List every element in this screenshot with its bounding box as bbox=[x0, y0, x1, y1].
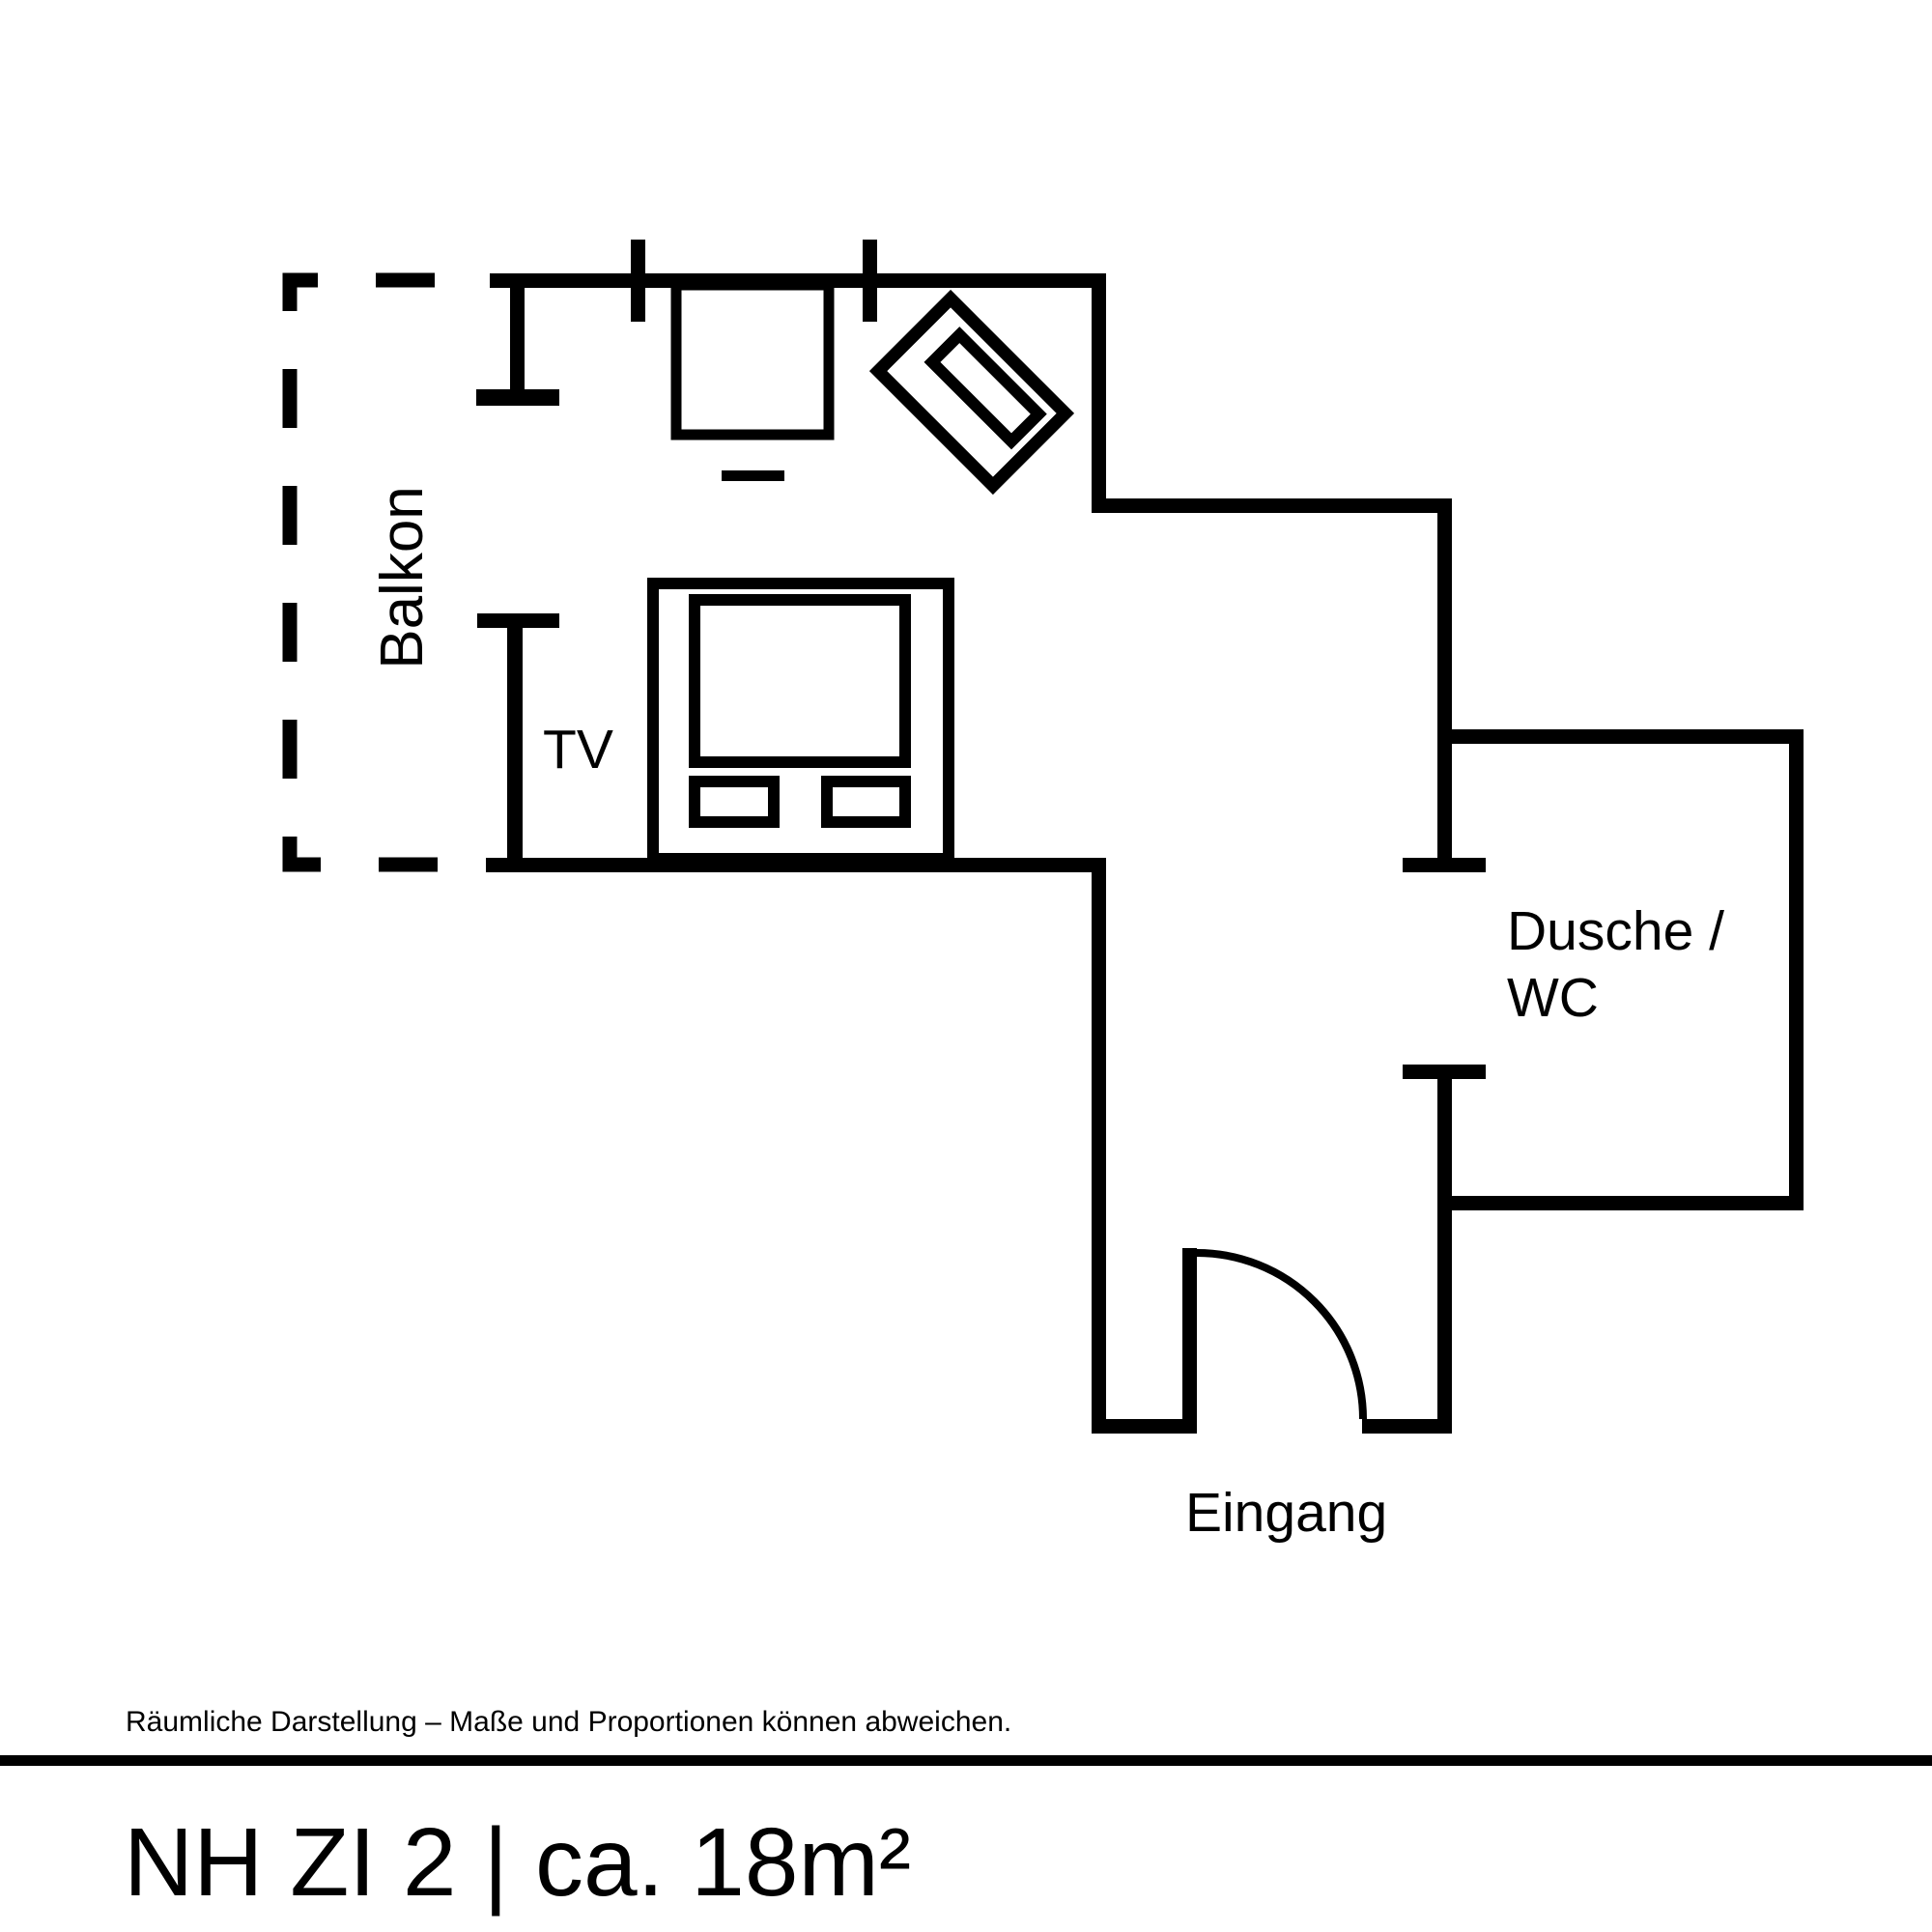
tv-drawer-left bbox=[695, 781, 774, 822]
armchair-inner bbox=[932, 335, 1038, 441]
furniture bbox=[653, 285, 1065, 859]
floorplan-page: Balkon TV Dusche / WC Eingang Räumliche … bbox=[0, 0, 1932, 1932]
disclaimer-text: Räumliche Darstellung – Maße und Proport… bbox=[126, 1706, 1011, 1738]
entrance-label: Eingang bbox=[1185, 1482, 1387, 1544]
wall-entrance-left bbox=[1092, 1419, 1197, 1434]
wall-corridor-left bbox=[1092, 858, 1106, 1434]
wall-bath-top bbox=[1437, 729, 1804, 744]
wall-mid-horizontal bbox=[1092, 498, 1452, 513]
page-title: NH ZI 2 | ca. 18m² bbox=[124, 1808, 911, 1917]
window-tick-right bbox=[863, 240, 877, 322]
footer-divider bbox=[0, 1755, 1932, 1766]
bathroom-label-line2: WC bbox=[1507, 967, 1599, 1029]
bath-door-jamb-upper bbox=[1403, 858, 1486, 872]
wall-right-upper bbox=[1092, 273, 1106, 513]
armchair-outer bbox=[878, 298, 1065, 486]
tv-label: TV bbox=[543, 719, 613, 781]
tv-screen bbox=[695, 600, 905, 762]
balcony-stub-top-stem bbox=[510, 288, 525, 389]
floorplan-drawing: Balkon TV Dusche / WC Eingang Räumliche … bbox=[0, 0, 1932, 1932]
table-rect bbox=[676, 285, 829, 435]
wall-bath-left-upper bbox=[1437, 498, 1452, 872]
wall-bath-bottom bbox=[1437, 1196, 1804, 1210]
balcony-stub-top-foot bbox=[476, 389, 559, 406]
wall-entrance-right bbox=[1362, 1419, 1452, 1434]
wall-corridor-right bbox=[1437, 1072, 1452, 1434]
window-tick-left bbox=[631, 240, 645, 322]
tv-stub-stem bbox=[507, 628, 523, 858]
wall-bath-right bbox=[1789, 729, 1804, 1210]
bathroom-label-line1: Dusche / bbox=[1507, 900, 1724, 962]
entrance-door-arc bbox=[1197, 1253, 1363, 1419]
chair-dash bbox=[722, 470, 784, 481]
tv-stub-cap bbox=[477, 613, 559, 628]
tv-cabinet bbox=[653, 583, 949, 859]
balcony-label: Balkon bbox=[369, 486, 436, 669]
tv-drawer-right bbox=[827, 781, 905, 822]
armchair-rotated bbox=[878, 298, 1065, 486]
entrance-door-leaf bbox=[1182, 1248, 1197, 1427]
